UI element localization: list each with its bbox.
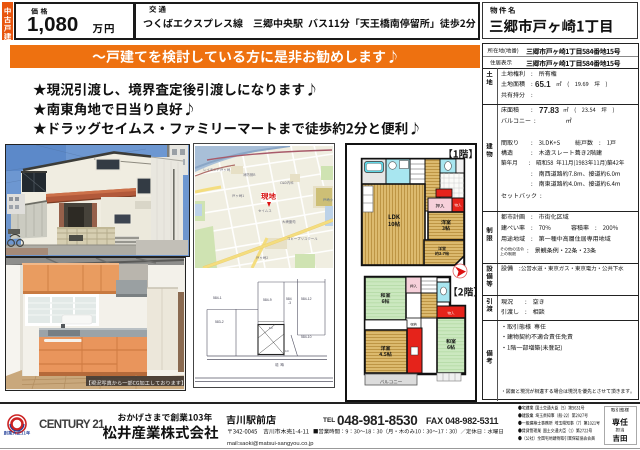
svg-text:583-2: 583-2 [215,320,224,324]
svg-text:584-12: 584-12 [301,297,312,301]
svg-text:584-9: 584-9 [263,298,272,302]
svg-text:584-3: 584-3 [286,297,292,305]
svg-text:6.0: 6.0 [269,326,273,330]
svg-text:584-10: 584-10 [301,335,312,339]
svg-text:584-1: 584-1 [213,296,222,300]
svg-text:4.0: 4.0 [285,349,289,353]
